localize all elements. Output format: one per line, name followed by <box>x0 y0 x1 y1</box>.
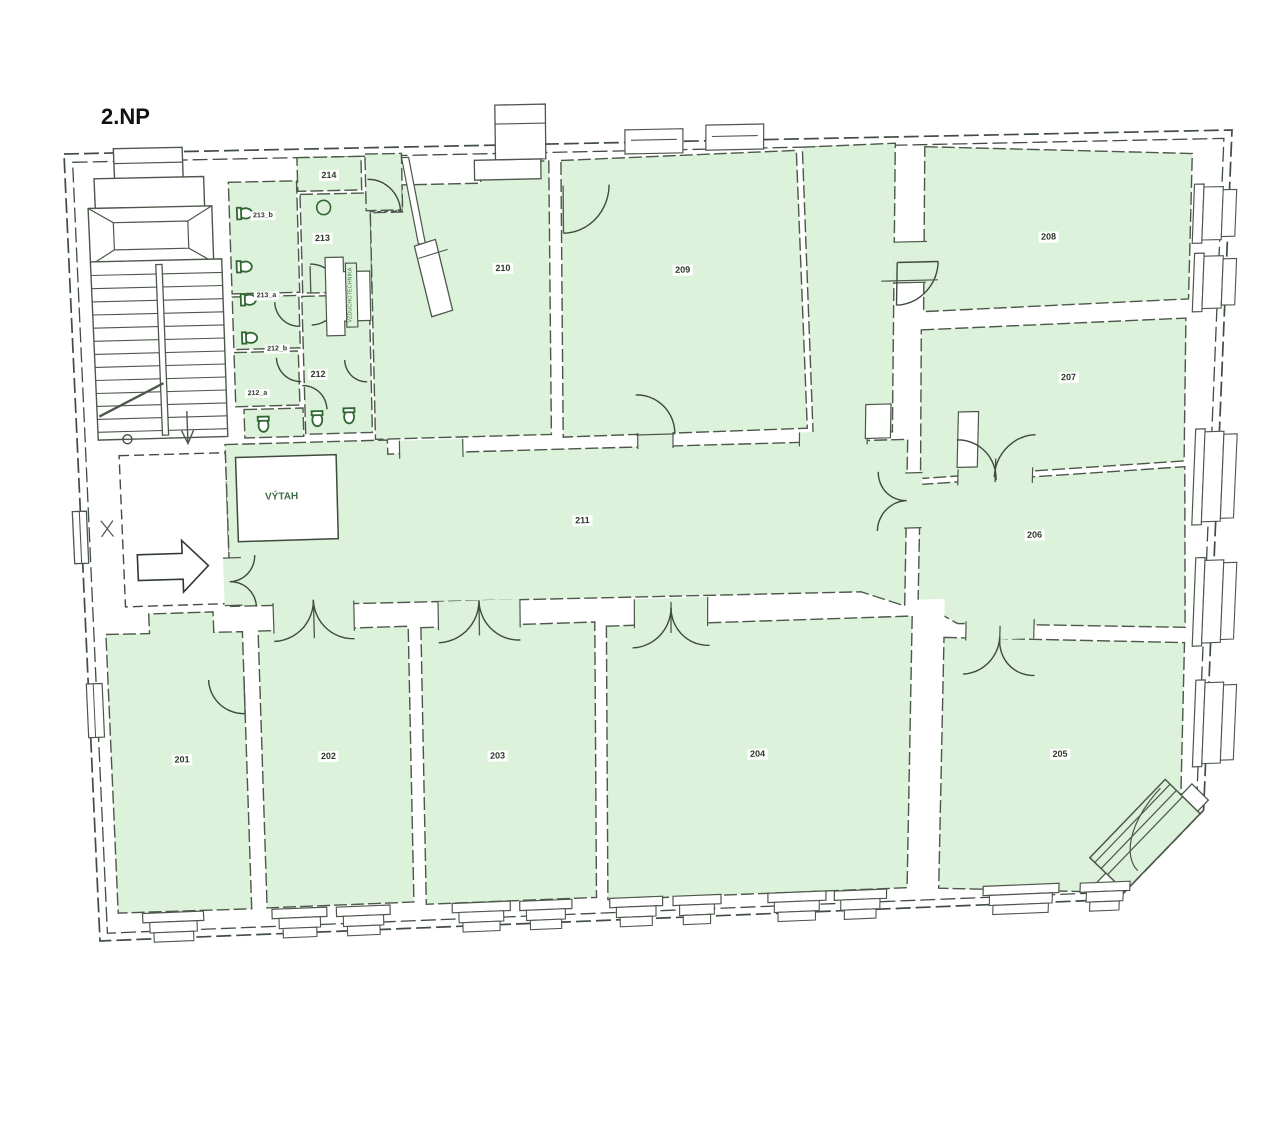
svg-text:206: 206 <box>1027 530 1042 540</box>
svg-text:212: 212 <box>310 369 325 379</box>
svg-text:203: 203 <box>490 750 505 760</box>
svg-text:210: 210 <box>495 263 510 273</box>
svg-text:209: 209 <box>675 265 690 275</box>
svg-text:208: 208 <box>1041 231 1056 241</box>
svg-text:202: 202 <box>321 751 336 761</box>
svg-text:213: 213 <box>315 233 330 243</box>
svg-text:212_a: 212_a <box>248 390 268 397</box>
svg-text:207: 207 <box>1061 372 1076 382</box>
svg-text:204: 204 <box>750 749 765 759</box>
svg-text:212_b: 212_b <box>267 345 287 352</box>
svg-text:214: 214 <box>321 170 336 180</box>
svg-text:VZDUCHOTECHNIKA: VZDUCHOTECHNIKA <box>348 267 354 322</box>
svg-text:205: 205 <box>1052 749 1067 759</box>
svg-text:211: 211 <box>575 515 590 525</box>
svg-text:213_a: 213_a <box>257 292 277 299</box>
svg-text:213_b: 213_b <box>253 212 273 219</box>
svg-text:VÝTAH: VÝTAH <box>265 489 298 503</box>
svg-text:2.NP: 2.NP <box>101 104 150 129</box>
svg-text:201: 201 <box>174 754 189 764</box>
